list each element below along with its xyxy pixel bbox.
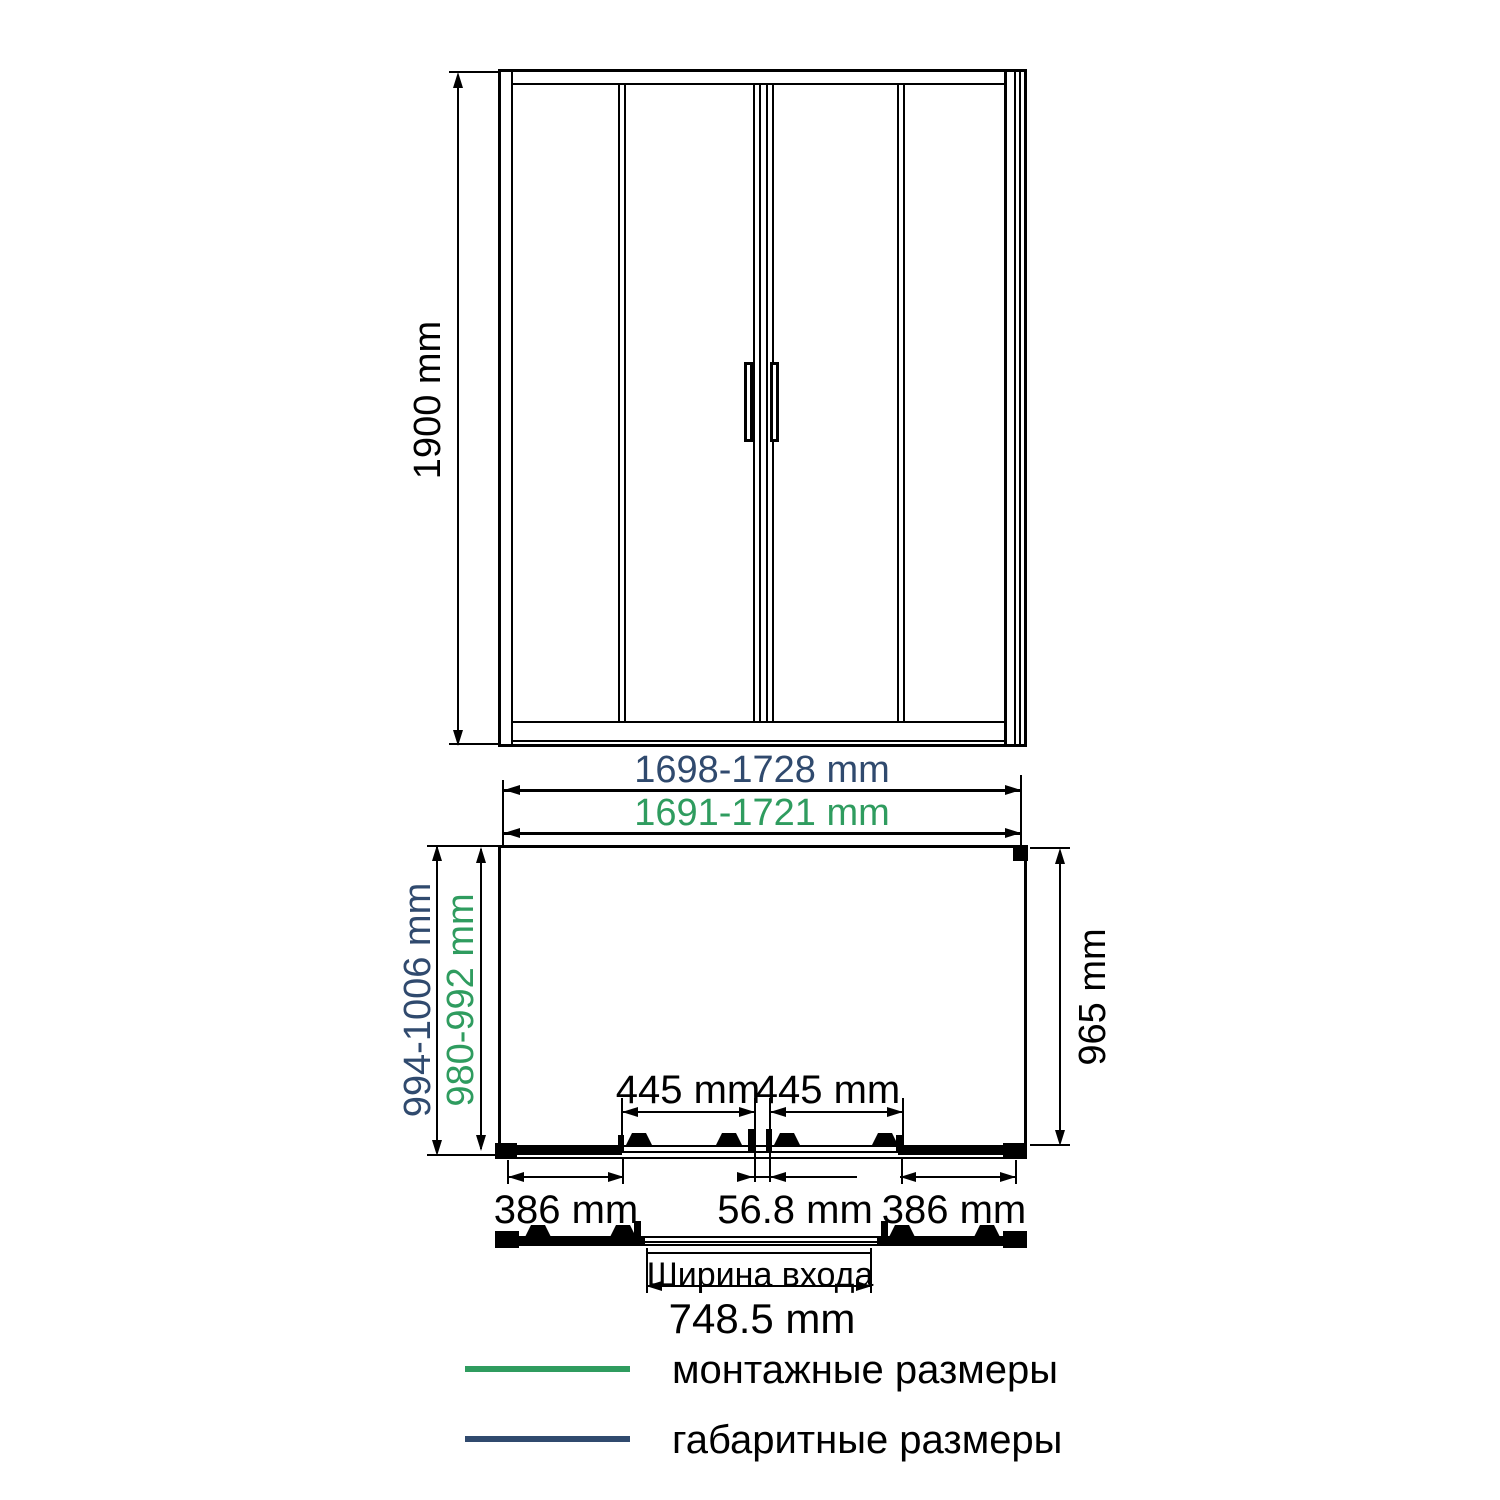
open-doors-stacked-right [877, 1237, 1021, 1246]
plan-left-edge [498, 845, 501, 1158]
plan-width-mounting-label: 1691-1721 mm [634, 793, 890, 835]
roller-icon [610, 1225, 636, 1237]
plan-depth-mounting-label: 980-992 mm [441, 893, 483, 1106]
front-bottom-rail-outer [498, 744, 1027, 747]
plan-width-ext-line-right [1020, 775, 1022, 845]
elevation-ext-line-bottom [449, 743, 501, 745]
plan-side-panel-edge [1024, 845, 1027, 1158]
door-panel-left-label: 445 mm [616, 1068, 761, 1112]
door-edge-guide [881, 1221, 888, 1246]
door-panel-right-dim-line [770, 1111, 903, 1113]
fixed-panel-ext-line [1015, 1160, 1017, 1184]
elevation-height-label: 1900 mm [408, 321, 450, 479]
plan-back-edge [498, 845, 1027, 848]
legend-overall-line [465, 1436, 630, 1442]
legend-overall-label: габаритные размеры [672, 1418, 1062, 1462]
arrow-down-icon [1055, 1130, 1065, 1146]
center-stopper [748, 1129, 754, 1153]
roller-icon [626, 1133, 652, 1145]
roller-icon [974, 1225, 1000, 1237]
open-doors-stacked-left [501, 1237, 645, 1246]
door-panel-left-dim-line [622, 1111, 755, 1113]
center-ext-line [754, 1098, 756, 1182]
front-left-wall-profile-inner [511, 69, 513, 747]
glass-divider [624, 85, 626, 721]
fixed-glass-left [517, 1146, 622, 1155]
entrance-dim-line [646, 1285, 872, 1287]
fixed-panel-ext-line [622, 1158, 624, 1184]
roller-icon [774, 1133, 800, 1145]
plan-side-panel-wall-profile [1013, 845, 1028, 861]
door-stile [766, 85, 768, 721]
entrance-width-label: 748.5 mm [669, 1296, 856, 1342]
front-right-wall-profile-mid [1014, 69, 1016, 747]
arrow-right-icon [739, 1107, 755, 1117]
roller-icon [872, 1133, 898, 1145]
fixed-panel-right-dim-line [900, 1176, 1016, 1178]
threshold-line [495, 1157, 1027, 1159]
arrow-left-icon [646, 1281, 662, 1291]
door-handle-right [770, 362, 779, 442]
arrow-left-icon [504, 828, 520, 838]
shower-enclosure-dimension-diagram: 1900 mm 1698-1728 mm 1691-1721 mm 994-10… [0, 0, 1500, 1500]
fixed-panel-ext-line [901, 1158, 903, 1184]
fixed-glass-right [898, 1146, 1004, 1155]
elevation-ext-line-top [449, 71, 499, 73]
front-right-wall-profile-mid [1019, 69, 1021, 747]
arrow-right-icon [1005, 785, 1021, 795]
arrow-left-icon [508, 1172, 524, 1182]
arrow-right-icon [887, 1107, 903, 1117]
elevation-height-dim-line [457, 76, 459, 742]
front-right-wall-profile-inner [1004, 69, 1007, 747]
door-panel-right-label: 445 mm [756, 1068, 901, 1112]
front-right-wall-profile-outer [1024, 69, 1027, 747]
entrance-caption-line [646, 1252, 872, 1254]
arrow-right-icon [737, 1172, 753, 1182]
side-panel-dim-line [1059, 851, 1061, 1142]
arrow-left-icon [770, 1172, 786, 1182]
door-stile [753, 85, 755, 721]
wall-profile-cap-right [1003, 1231, 1027, 1248]
plan-depth-overall-label: 994-1006 mm [398, 883, 440, 1117]
door-handle-left [744, 362, 753, 442]
panel-joint-bracket [618, 1135, 624, 1153]
center-overlap-label: 56.8 mm [717, 1188, 873, 1232]
overlap-dim-line [740, 1176, 857, 1178]
arrow-right-icon [1005, 828, 1021, 838]
arrow-up-icon [476, 847, 486, 863]
plan-width-ext-line-left [502, 780, 504, 845]
roller-icon [716, 1133, 742, 1145]
arrow-up-icon [1055, 848, 1065, 864]
arrow-down-icon [476, 1135, 486, 1151]
fixed-panel-ext-line [507, 1160, 509, 1184]
arrow-left-icon [770, 1107, 786, 1117]
arrow-up-icon [453, 72, 463, 88]
glass-divider [903, 85, 905, 721]
legend-mounting-label: монтажные размеры [672, 1348, 1058, 1392]
wall-profile-cap-left [495, 1231, 519, 1248]
arrow-up-icon [432, 845, 442, 861]
front-top-rail-outer [498, 69, 1027, 72]
door-panel-ext-line [902, 1098, 904, 1145]
glass-divider [897, 85, 899, 721]
glass-divider [618, 85, 620, 721]
entrance-caption: Ширина входа [647, 1257, 874, 1294]
arrow-right-icon [856, 1281, 872, 1291]
legend-mounting-line [465, 1366, 630, 1372]
plan-width-overall-label: 1698-1728 mm [634, 750, 890, 792]
arrow-down-icon [432, 1140, 442, 1156]
roller-icon [525, 1225, 551, 1237]
roller-icon [889, 1225, 915, 1237]
front-left-wall-profile-outer [498, 69, 501, 747]
front-glass-bottom-edge [513, 721, 1005, 723]
door-stile [759, 85, 761, 721]
arrow-left-icon [622, 1107, 638, 1117]
arrow-right-icon [1000, 1172, 1016, 1182]
arrow-left-icon [504, 785, 520, 795]
center-stopper [766, 1129, 772, 1153]
fixed-panel-left-dim-line [508, 1176, 624, 1178]
side-panel-depth-label: 965 mm [1073, 928, 1115, 1065]
door-edge-guide [634, 1221, 641, 1246]
front-bottom-rail-inner [513, 740, 1005, 742]
